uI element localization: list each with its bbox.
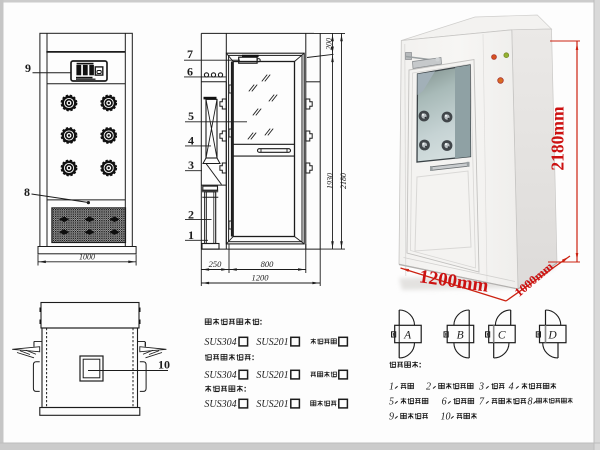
- svg-text:SUS201: SUS201: [256, 337, 288, 348]
- svg-text:SUS304: SUS304: [204, 337, 236, 348]
- svg-text:SUS201: SUS201: [256, 370, 288, 381]
- svg-text:6: 6: [187, 65, 193, 79]
- svg-text:10: 10: [158, 358, 170, 372]
- svg-text:4: 4: [509, 382, 514, 393]
- svg-text:SUS304: SUS304: [204, 370, 236, 381]
- svg-text:1200: 1200: [252, 272, 270, 282]
- svg-text:7: 7: [187, 47, 193, 61]
- svg-text:4: 4: [188, 134, 194, 148]
- svg-text:3: 3: [478, 382, 484, 393]
- svg-text:1: 1: [188, 228, 194, 242]
- svg-text:B: B: [457, 330, 464, 342]
- svg-text:9: 9: [389, 412, 394, 423]
- svg-text:2180mm: 2180mm: [548, 106, 568, 171]
- svg-text:D: D: [547, 330, 557, 342]
- svg-text:SUS304: SUS304: [204, 399, 236, 410]
- svg-text:200: 200: [325, 38, 334, 50]
- svg-text:6: 6: [442, 397, 447, 408]
- svg-text:C: C: [498, 330, 506, 342]
- svg-text:5: 5: [188, 109, 194, 123]
- svg-text:1000: 1000: [79, 252, 95, 261]
- svg-text:1: 1: [389, 382, 394, 393]
- svg-text:8: 8: [528, 397, 533, 408]
- svg-text:1930: 1930: [325, 173, 334, 189]
- svg-text:SUS201: SUS201: [256, 399, 288, 410]
- svg-text:3: 3: [188, 158, 194, 172]
- svg-text:A: A: [403, 330, 412, 342]
- svg-text:2180: 2180: [339, 173, 348, 189]
- svg-text:10: 10: [441, 412, 451, 423]
- svg-text:250: 250: [209, 259, 223, 269]
- svg-text:800: 800: [261, 259, 275, 269]
- svg-text:9: 9: [25, 61, 31, 75]
- svg-text:2: 2: [426, 382, 431, 393]
- svg-text:5: 5: [389, 397, 394, 408]
- svg-text:8: 8: [24, 185, 30, 199]
